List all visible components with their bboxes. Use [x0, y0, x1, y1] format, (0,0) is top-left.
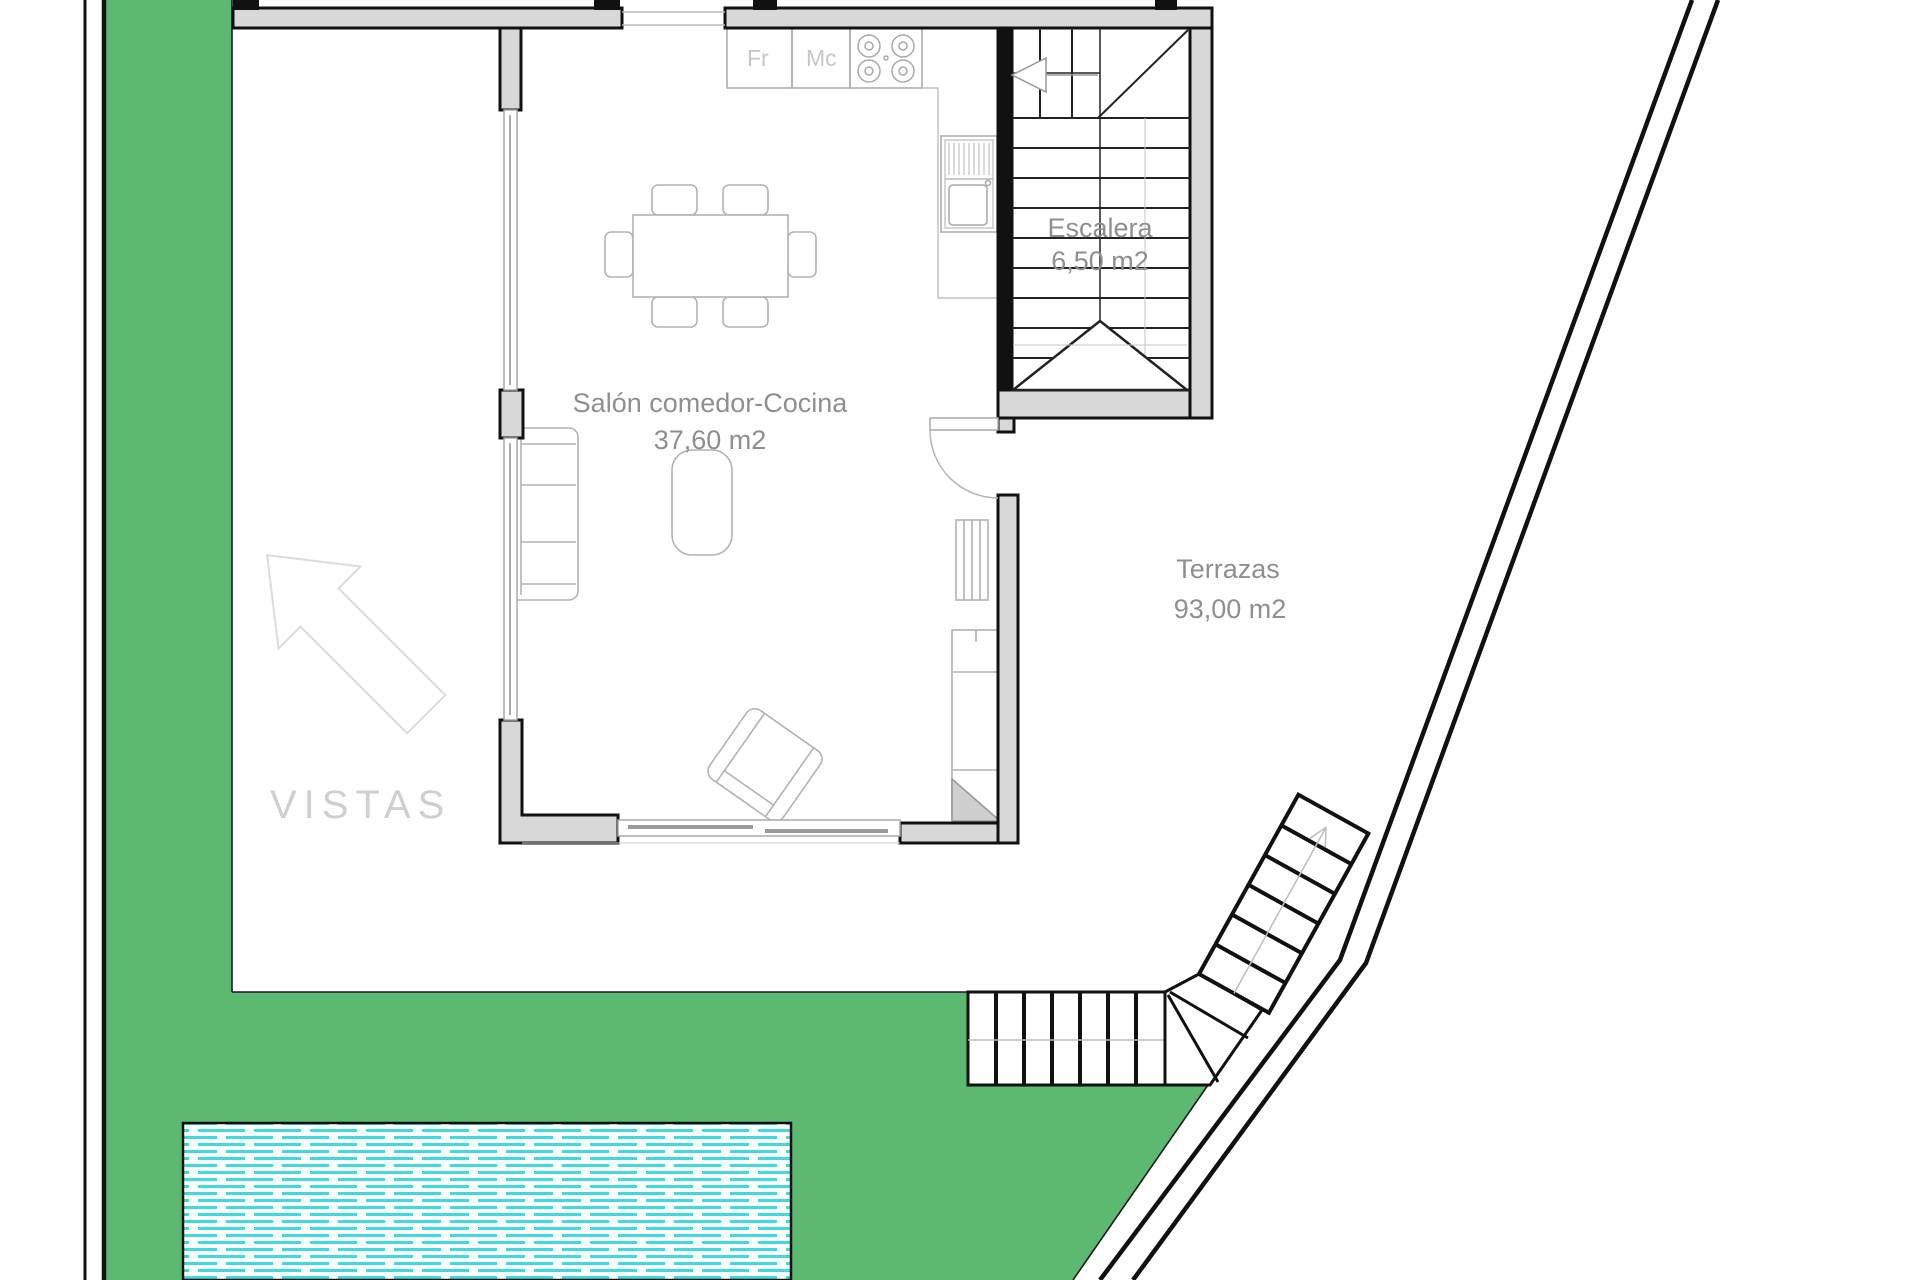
garden-left-strip: [105, 0, 232, 1280]
west-window-upper: [504, 110, 517, 390]
floor-plan-canvas: VISTAS: [0, 0, 1920, 1280]
furniture: [505, 185, 1000, 825]
swimming-pool: [183, 1123, 791, 1280]
stair-room-west-wall: [998, 28, 1012, 390]
burner-icon: [892, 60, 914, 82]
stair-diagonal: [1098, 30, 1188, 118]
dining-chair: [723, 297, 768, 327]
coffee-table: [672, 450, 732, 555]
dining-chair: [652, 185, 697, 215]
wall-shelf: [956, 520, 988, 600]
west-wall-mid-pier: [500, 390, 523, 438]
stove-burners: [858, 35, 914, 82]
terrace-door: [930, 418, 998, 498]
burner-knob: [884, 56, 888, 60]
escalera-label-line2: 6,50 m2: [1051, 246, 1149, 276]
escalera-label-line1: Escalera: [1047, 213, 1153, 243]
vistas-arrow: [226, 514, 467, 755]
staircase-interior: [1012, 28, 1190, 390]
north-wall-east: [725, 8, 1212, 28]
pool-basin: [183, 1123, 791, 1280]
vistas-arrow-shape: [226, 514, 467, 755]
stair-room-south-step: [998, 418, 1014, 432]
west-window-lower: [504, 438, 517, 720]
north-wall-west: [233, 8, 622, 28]
stair-break-chevron: [1013, 321, 1187, 390]
terrazas-label-line2: 93,00 m2: [1174, 594, 1287, 624]
burner-icon-inner: [865, 67, 873, 75]
burner-icon: [858, 35, 880, 57]
burner-icon: [892, 35, 914, 57]
stair-room-south-wall: [998, 390, 1212, 418]
west-south-corner-wall: [500, 720, 618, 843]
salon-label-line1: Salón comedor-Cocina: [573, 388, 849, 418]
dining-chair: [652, 297, 697, 327]
dining-set: [605, 185, 816, 327]
salon-label-line2: 37,60 m2: [654, 425, 767, 455]
stair-run-diagonal: [1199, 795, 1368, 1013]
vistas-label: VISTAS: [270, 783, 451, 827]
west-wall-top-pier: [500, 28, 521, 110]
burner-icon: [858, 60, 880, 82]
dining-chair: [723, 185, 768, 215]
dining-chair: [605, 232, 633, 277]
terrazas-label-line1: Terrazas: [1176, 554, 1280, 584]
north-opening-window: [622, 12, 725, 25]
burner-icon-inner: [899, 67, 907, 75]
stair-direction-arrow: [1012, 58, 1098, 92]
armchair: [704, 705, 826, 825]
microwave-label: Mc: [806, 45, 837, 71]
armchair-body: [704, 705, 826, 825]
stair-room-east-wall: [1190, 28, 1212, 418]
dining-chair: [788, 232, 816, 277]
burner-icon-inner: [865, 42, 873, 50]
floor-plan-page: VISTAS: [0, 0, 1920, 1280]
east-wall: [998, 495, 1018, 843]
building-walls: [233, 0, 1212, 843]
dining-table: [633, 215, 788, 297]
burner-icon-inner: [899, 42, 907, 50]
boundary-right-inner: [1133, 0, 1718, 1280]
door-swing-arc: [930, 430, 998, 498]
door-leaf: [930, 418, 998, 430]
kitchen-sink: [941, 136, 997, 232]
fridge-label: Fr: [747, 45, 769, 71]
